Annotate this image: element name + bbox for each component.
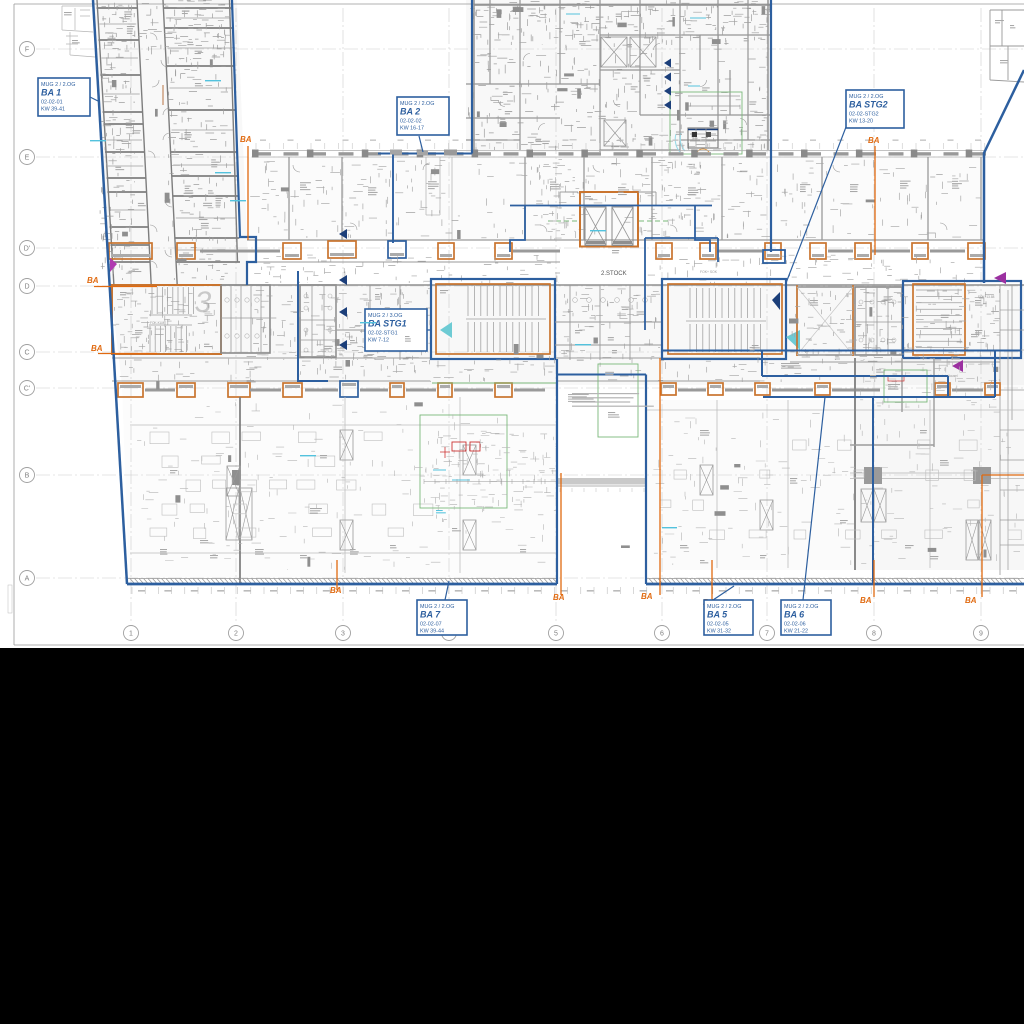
svg-text:02-02-STG2: 02-02-STG2 bbox=[849, 112, 879, 118]
svg-text:02-02-07: 02-02-07 bbox=[420, 622, 442, 628]
svg-text:BA: BA bbox=[91, 344, 103, 353]
svg-text:7: 7 bbox=[765, 631, 769, 638]
svg-text:02-02-02: 02-02-02 bbox=[400, 119, 422, 125]
svg-text:D': D' bbox=[24, 246, 30, 253]
svg-text:KW 13-20: KW 13-20 bbox=[849, 119, 873, 125]
svg-text:BA 1: BA 1 bbox=[41, 88, 61, 98]
svg-text:BA STG2: BA STG2 bbox=[849, 100, 888, 110]
svg-text:BA: BA bbox=[240, 135, 252, 144]
svg-text:5: 5 bbox=[554, 631, 558, 638]
svg-text:02-02-06: 02-02-06 bbox=[784, 622, 806, 628]
svg-text:02-02-01: 02-02-01 bbox=[41, 100, 63, 106]
svg-text:BA: BA bbox=[553, 593, 565, 602]
svg-text:BA 6: BA 6 bbox=[784, 610, 805, 620]
svg-text:BA 7: BA 7 bbox=[420, 610, 441, 620]
svg-text:BA STG1: BA STG1 bbox=[368, 319, 407, 329]
svg-text:2.STOCK: 2.STOCK bbox=[601, 271, 627, 277]
svg-text:KW 31-32: KW 31-32 bbox=[707, 629, 731, 635]
svg-text:BA 2: BA 2 bbox=[400, 107, 420, 117]
svg-text:BA: BA bbox=[87, 276, 99, 285]
svg-text:KW 7-12: KW 7-12 bbox=[368, 338, 389, 344]
svg-text:02-02-STG1: 02-02-STG1 bbox=[368, 331, 398, 337]
svg-text:KW 16-17: KW 16-17 bbox=[400, 126, 424, 132]
svg-text:E: E bbox=[25, 155, 30, 162]
svg-text:C: C bbox=[24, 350, 29, 357]
svg-text:BA 5: BA 5 bbox=[707, 610, 728, 620]
svg-text:F: F bbox=[25, 47, 29, 54]
svg-text:BA: BA bbox=[641, 592, 653, 601]
svg-text:2: 2 bbox=[234, 631, 238, 638]
svg-text:9: 9 bbox=[979, 631, 983, 638]
svg-text:D: D bbox=[24, 284, 29, 291]
svg-text:B: B bbox=[25, 473, 30, 480]
svg-text:KW 39-44: KW 39-44 bbox=[420, 629, 444, 635]
svg-text:KW 21-22: KW 21-22 bbox=[784, 629, 808, 635]
svg-text:BA: BA bbox=[868, 136, 880, 145]
svg-text:1: 1 bbox=[129, 631, 133, 638]
svg-text:3: 3 bbox=[341, 631, 345, 638]
svg-text:8: 8 bbox=[872, 631, 876, 638]
svg-text:02-02-05: 02-02-05 bbox=[707, 622, 729, 628]
svg-text:BA: BA bbox=[860, 596, 872, 605]
svg-text:FOK+ SOK: FOK+ SOK bbox=[700, 270, 718, 274]
svg-text:6: 6 bbox=[660, 631, 664, 638]
svg-text:FOK-KLM: FOK-KLM bbox=[150, 321, 165, 325]
svg-text:BA: BA bbox=[965, 596, 977, 605]
svg-text:C': C' bbox=[24, 386, 30, 393]
svg-text:KW 39-41: KW 39-41 bbox=[41, 107, 65, 113]
svg-text:BA: BA bbox=[330, 586, 342, 595]
svg-text:A: A bbox=[25, 576, 30, 583]
